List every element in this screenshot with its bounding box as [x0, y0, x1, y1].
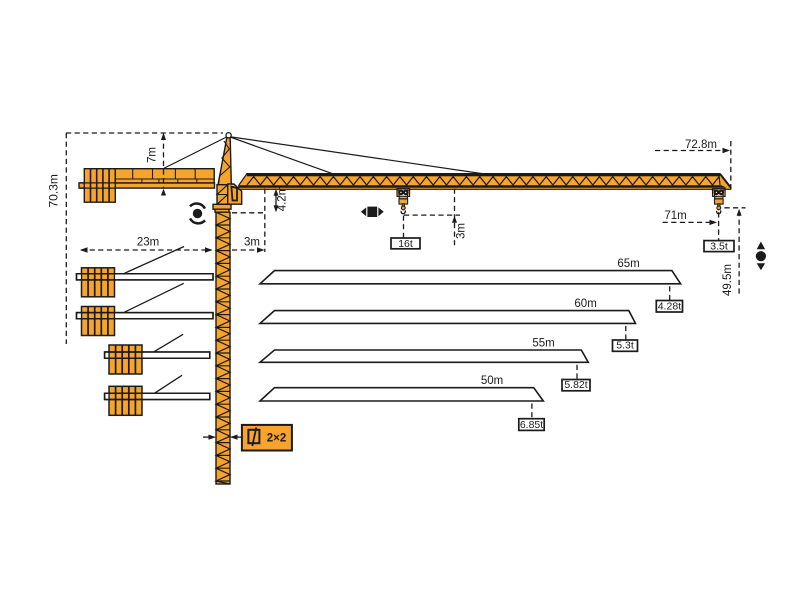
svg-text:55m: 55m	[532, 338, 554, 350]
svg-text:5.3t: 5.3t	[616, 340, 634, 352]
svg-text:72.8m: 72.8m	[685, 139, 717, 151]
svg-text:4.28t: 4.28t	[658, 300, 681, 312]
svg-text:7m: 7m	[146, 147, 158, 163]
svg-text:16t: 16t	[398, 238, 413, 250]
svg-text:71m: 71m	[664, 210, 686, 222]
svg-text:50m: 50m	[481, 375, 503, 387]
svg-text:3m: 3m	[456, 223, 468, 239]
svg-text:3.5t: 3.5t	[710, 241, 728, 253]
svg-text:4.2m: 4.2m	[277, 186, 289, 212]
svg-text:49.5m: 49.5m	[722, 264, 734, 296]
svg-text:23m: 23m	[137, 237, 159, 249]
svg-text:2×2: 2×2	[267, 433, 287, 445]
svg-text:65m: 65m	[617, 258, 639, 270]
svg-text:3m: 3m	[244, 237, 260, 249]
svg-text:70.3m: 70.3m	[47, 174, 61, 207]
svg-text:6.85t: 6.85t	[520, 419, 543, 431]
svg-text:5.82t: 5.82t	[564, 379, 587, 391]
svg-text:60m: 60m	[574, 298, 596, 310]
